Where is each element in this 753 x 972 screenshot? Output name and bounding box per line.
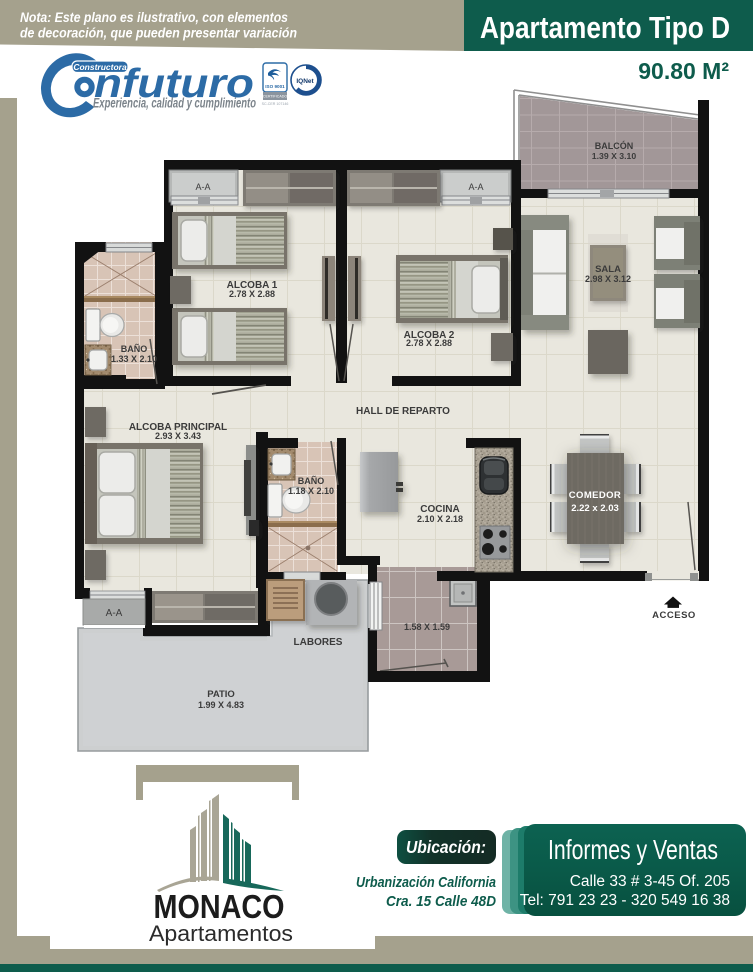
svg-text:Nota: Este plano es ilustrativ: Nota: Este plano es ilustrativo, con ele… bbox=[20, 9, 288, 25]
svg-text:2.78 X 2.88: 2.78 X 2.88 bbox=[406, 338, 452, 348]
svg-text:Calle 33 # 3-45 Of. 205: Calle 33 # 3-45 Of. 205 bbox=[570, 873, 730, 890]
svg-text:Constructora: Constructora bbox=[73, 62, 127, 72]
svg-text:1.99 X 4.83: 1.99 X 4.83 bbox=[198, 700, 244, 710]
svg-text:90.80 M²: 90.80 M² bbox=[638, 58, 729, 84]
svg-text:2.98 X 3.12: 2.98 X 3.12 bbox=[585, 274, 631, 284]
svg-text:A-A: A-A bbox=[106, 608, 123, 619]
svg-text:BAÑO: BAÑO bbox=[298, 476, 325, 486]
svg-text:A-A: A-A bbox=[195, 182, 210, 192]
svg-text:BALCÓN: BALCÓN bbox=[595, 140, 634, 151]
svg-text:1.18 X 2.10: 1.18 X 2.10 bbox=[288, 486, 334, 496]
svg-text:Ubicación:: Ubicación: bbox=[406, 837, 486, 857]
svg-text:ISO 9001: ISO 9001 bbox=[265, 84, 285, 89]
svg-text:BAÑO: BAÑO bbox=[121, 344, 148, 354]
svg-text:1.33 X 2.10: 1.33 X 2.10 bbox=[111, 354, 157, 364]
svg-text:ACCESO: ACCESO bbox=[652, 610, 696, 621]
svg-text:CERTIFICADO: CERTIFICADO bbox=[263, 95, 287, 99]
svg-text:MONACO: MONACO bbox=[154, 888, 285, 925]
svg-text:2.10 X 2.18: 2.10 X 2.18 bbox=[417, 514, 463, 524]
svg-text:LABORES: LABORES bbox=[294, 637, 343, 648]
svg-text:HALL DE REPARTO: HALL DE REPARTO bbox=[356, 406, 450, 417]
svg-text:Informes y Ventas: Informes y Ventas bbox=[548, 834, 718, 865]
svg-text:Urbanización California: Urbanización California bbox=[356, 874, 496, 891]
svg-text:2.93 X 3.43: 2.93 X 3.43 bbox=[155, 431, 201, 441]
svg-text:Tel: 791 23 23 - 320 549 16 38: Tel: 791 23 23 - 320 549 16 38 bbox=[520, 892, 730, 909]
svg-text:2.22 x 2.03: 2.22 x 2.03 bbox=[571, 503, 619, 514]
svg-text:1.58 X 1.59: 1.58 X 1.59 bbox=[404, 622, 450, 632]
svg-text:Apartamentos: Apartamentos bbox=[149, 921, 293, 946]
svg-text:1.39 X 3.10: 1.39 X 3.10 bbox=[592, 151, 637, 161]
svg-text:COMEDOR: COMEDOR bbox=[569, 490, 621, 501]
svg-text:SC-CER 107146: SC-CER 107146 bbox=[262, 102, 289, 106]
svg-text:2.78 X 2.88: 2.78 X 2.88 bbox=[229, 289, 275, 299]
svg-text:Cra. 15 Calle 48D: Cra. 15 Calle 48D bbox=[386, 893, 496, 910]
svg-text:Experiencia, calidad y cumplim: Experiencia, calidad y cumplimiento bbox=[93, 96, 256, 111]
svg-text:Apartamento Tipo D: Apartamento Tipo D bbox=[480, 10, 730, 45]
svg-text:PATIO: PATIO bbox=[207, 689, 235, 700]
svg-text:A-A: A-A bbox=[468, 182, 483, 192]
svg-text:de decoración, que pueden pres: de decoración, que pueden presentar vari… bbox=[20, 25, 297, 41]
svg-text:IQNet: IQNet bbox=[296, 78, 314, 85]
